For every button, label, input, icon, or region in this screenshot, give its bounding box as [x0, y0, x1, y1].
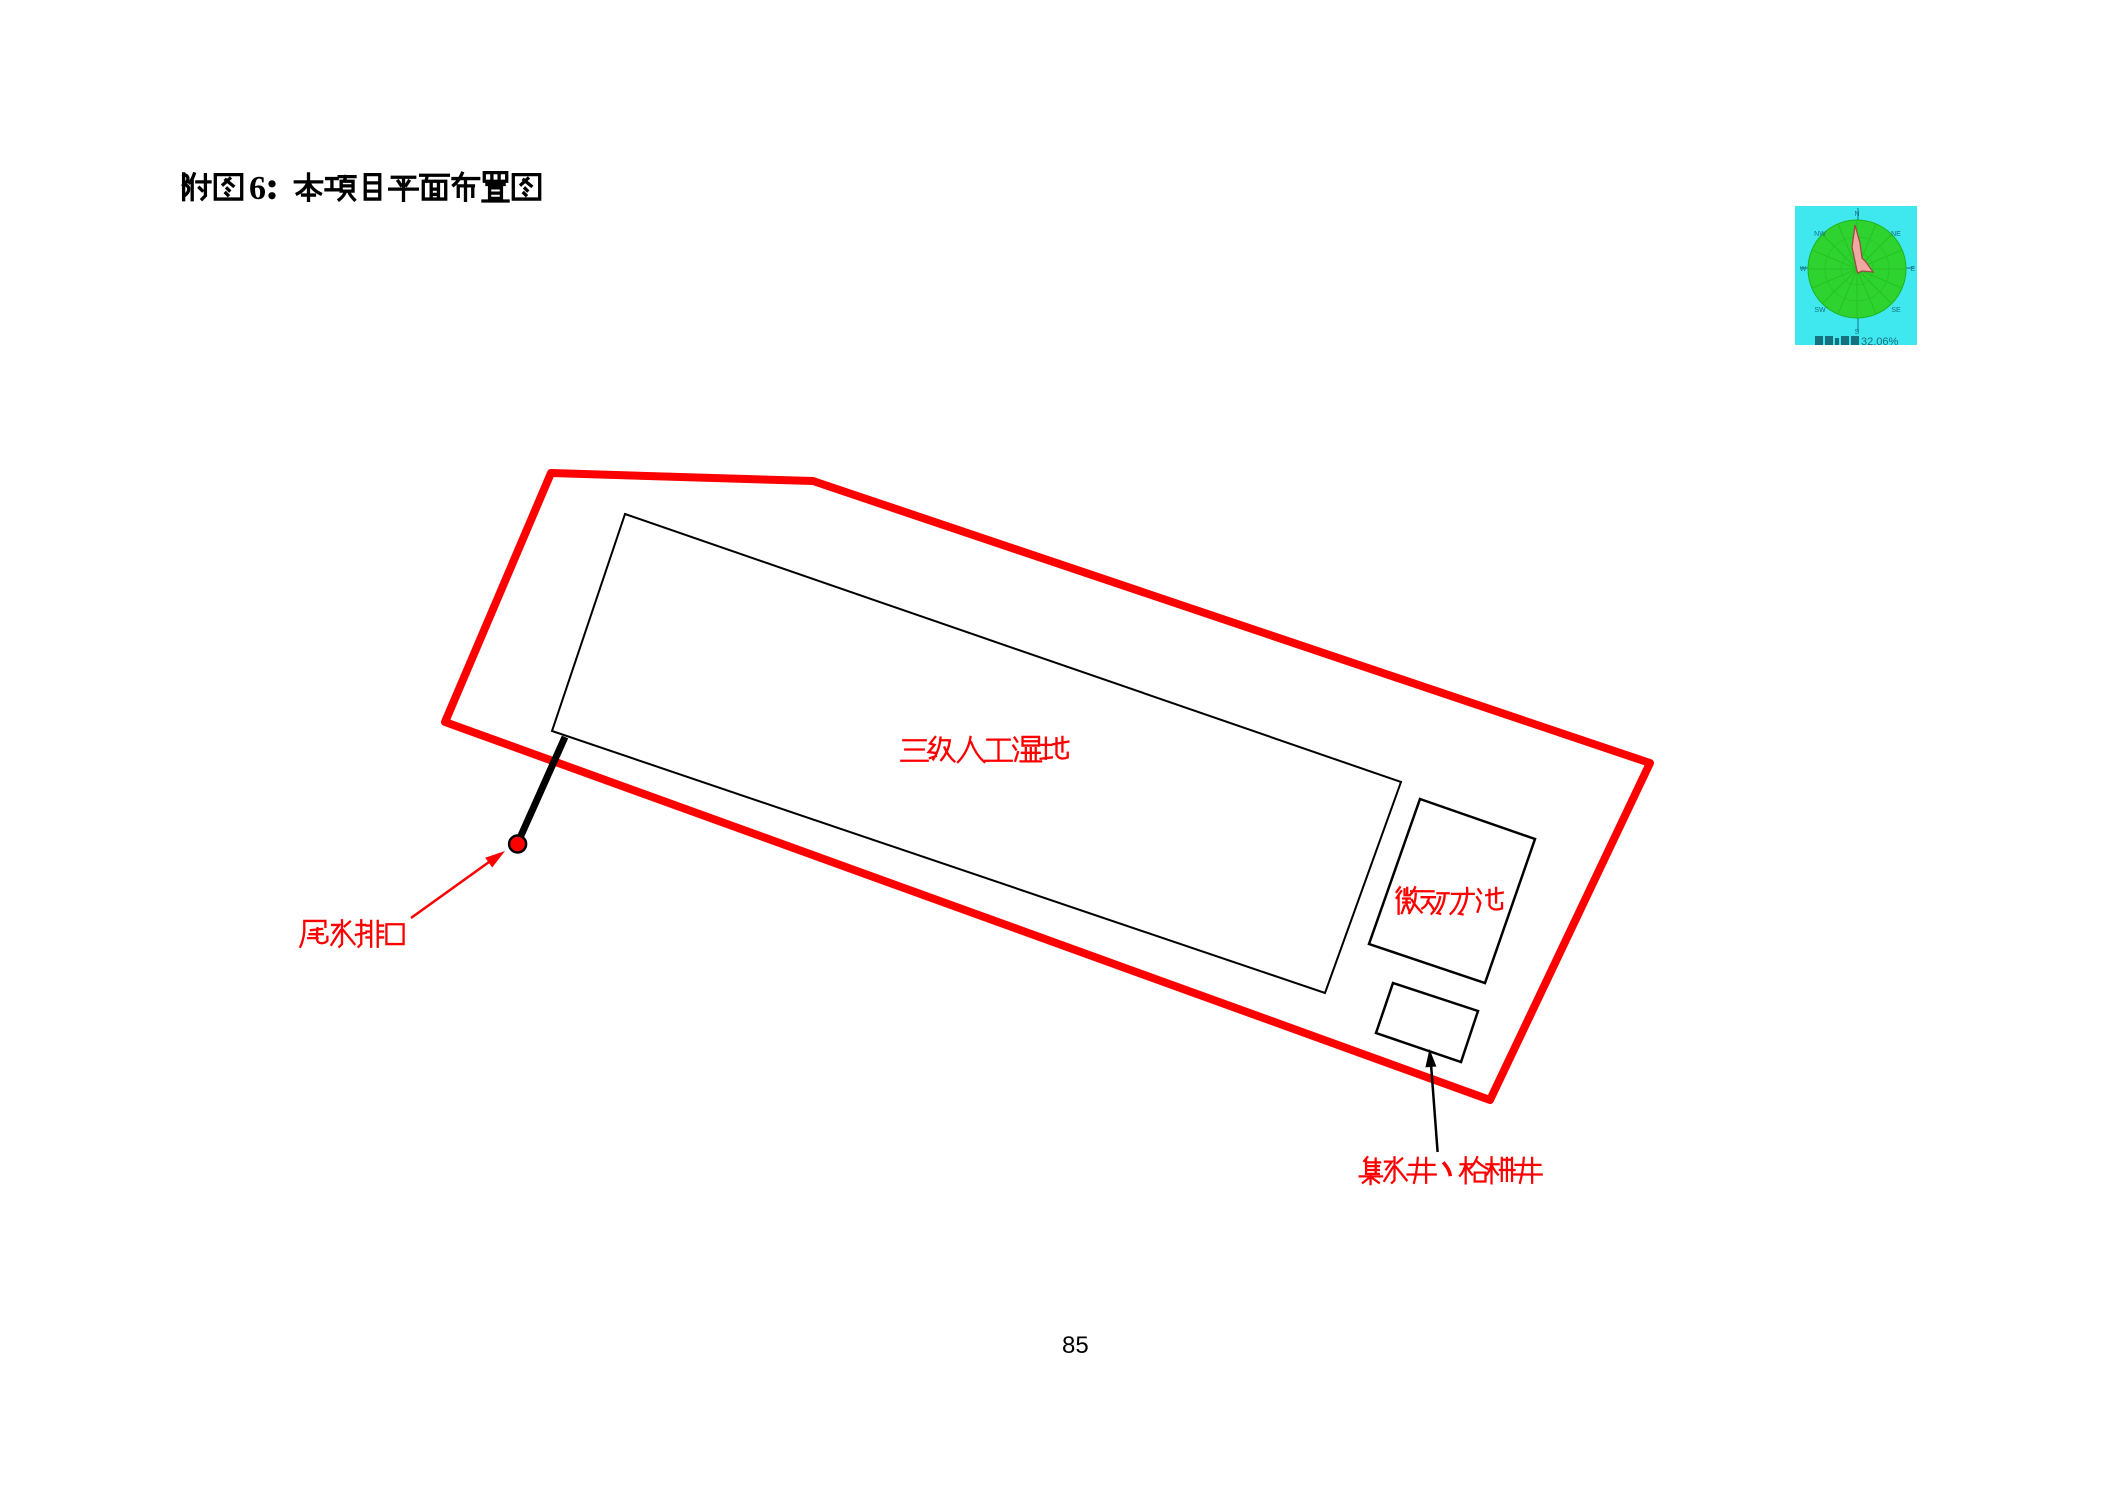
svg-text:SW: SW: [1814, 307, 1826, 314]
svg-text:W: W: [1800, 266, 1807, 273]
svg-text:85: 85: [1062, 1332, 1089, 1359]
svg-text:NE: NE: [1891, 231, 1901, 238]
svg-text:SE: SE: [1891, 307, 1901, 314]
svg-text:E: E: [1911, 266, 1916, 273]
svg-text:32.06%: 32.06%: [1861, 336, 1899, 348]
svg-text:NW: NW: [1814, 231, 1826, 238]
svg-text:S: S: [1855, 329, 1860, 336]
svg-text:N: N: [1854, 211, 1859, 218]
svg-text:6: 6: [249, 170, 266, 207]
